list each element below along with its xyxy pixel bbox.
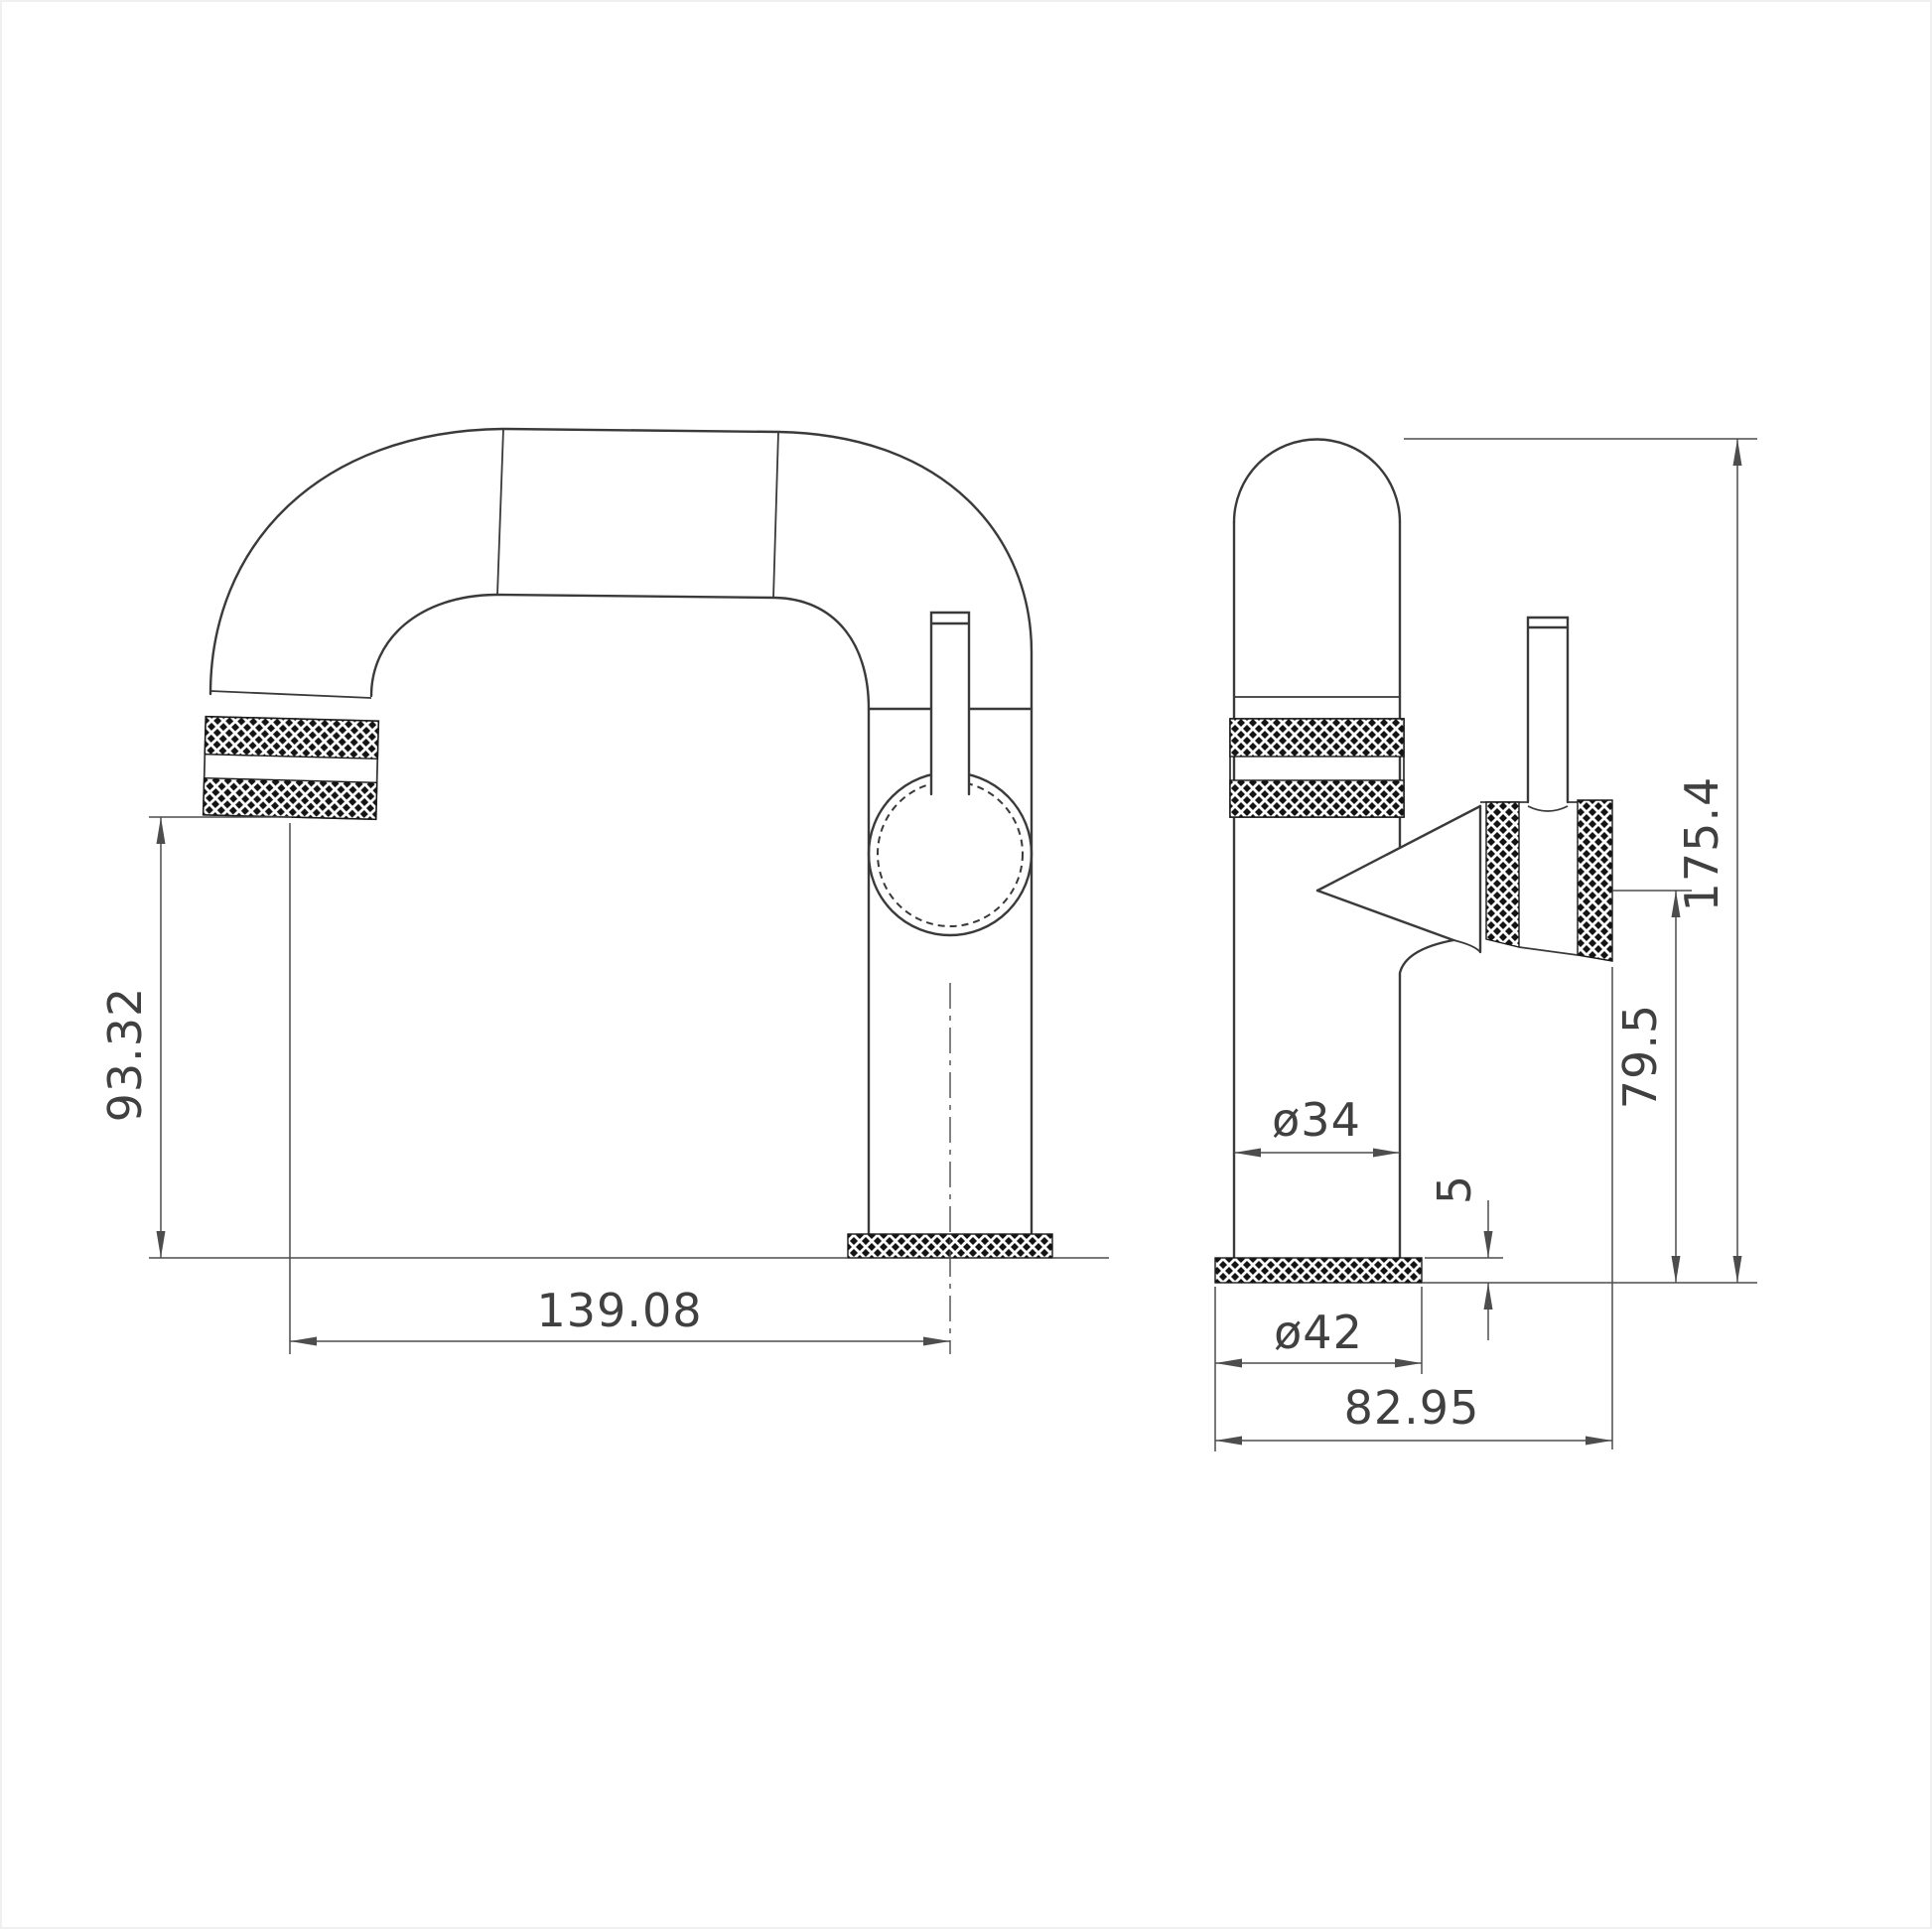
- spout-tip-ferrule: [204, 717, 379, 820]
- spout-tip-cap-line: [210, 691, 371, 698]
- dim-arrow-left: [1234, 1149, 1261, 1158]
- dim-label-base-height: 5: [1428, 1174, 1481, 1204]
- dim-arrow-right: [1586, 1437, 1612, 1446]
- dim-body-diameter: ø34: [1234, 1093, 1400, 1158]
- front-view: 93.32 139.08: [98, 429, 1109, 1354]
- collar-knurl-right: [1578, 800, 1612, 961]
- body-knurl-band-lower: [1230, 780, 1404, 817]
- spout-segment-line-right: [773, 432, 778, 598]
- handle-lever: [931, 613, 969, 796]
- spout-outer-profile: [210, 429, 1032, 1234]
- dim-arrow-right: [923, 1337, 950, 1346]
- dim-arrow-right: [1395, 1359, 1422, 1368]
- lever-base-fillet: [1528, 806, 1568, 811]
- spout-outline: [210, 429, 1032, 1234]
- dim-arrow-down: [1484, 1231, 1493, 1258]
- handle-knob: [869, 772, 1032, 935]
- collar-knurl-left: [1486, 802, 1519, 947]
- body-knurl-bands: [1230, 719, 1404, 817]
- spout-inner-profile: [371, 595, 869, 1234]
- technical-drawing-canvas: 93.32 139.08: [2, 2, 1932, 1931]
- knob-outer-circle: [869, 772, 1032, 935]
- dim-handle-height: 79.5: [1612, 891, 1692, 1283]
- body-knurl-band-upper: [1230, 719, 1404, 757]
- dim-arrow-right: [1373, 1149, 1400, 1158]
- side-view: 175.4 79.5 ø34 5: [1215, 439, 1757, 1451]
- collar-bottom-slant: [1519, 947, 1578, 955]
- spout-segment-line-left: [497, 429, 503, 595]
- dim-arrow-down: [1733, 1256, 1742, 1283]
- dim-arrow-left: [290, 1337, 317, 1346]
- dim-arrow-down: [1672, 1256, 1681, 1283]
- handle-lever-side: [1528, 618, 1568, 811]
- dim-arrow-left: [1215, 1359, 1242, 1368]
- dim-arrow-left: [1215, 1437, 1242, 1446]
- ferrule-knurl-band-lower: [204, 778, 377, 820]
- lever-mask: [1528, 618, 1568, 804]
- dim-label-spout-reach: 139.08: [537, 1284, 703, 1337]
- dim-label-spout-clearance: 93.32: [98, 987, 152, 1123]
- cone-collar-fillet: [1453, 940, 1480, 952]
- drawing-sheet: 93.32 139.08: [0, 0, 1932, 1929]
- dim-label-overall-depth: 82.95: [1344, 1381, 1480, 1435]
- dim-overall-depth: 82.95: [1215, 967, 1612, 1449]
- ferrule-knurl-band-upper: [205, 717, 378, 759]
- base-ring-knurl-side: [1215, 1258, 1422, 1283]
- dim-spout-clearance: 93.32: [98, 817, 1109, 1258]
- handle-collar: [1480, 800, 1612, 961]
- dim-label-handle-height: 79.5: [1613, 1004, 1667, 1109]
- dim-spout-reach: 139.08: [290, 823, 950, 1354]
- dim-arrow-up: [157, 817, 166, 844]
- dim-label-base-diameter: ø42: [1274, 1306, 1363, 1359]
- body-cap-arc: [1234, 440, 1400, 523]
- dim-arrow-up: [1733, 439, 1742, 466]
- dim-label-body-diameter: ø34: [1272, 1093, 1361, 1147]
- dim-arrow-down: [157, 1231, 166, 1258]
- dim-base-height: 5: [1425, 1174, 1503, 1340]
- dim-label-overall-height: 175.4: [1675, 776, 1728, 912]
- lever-mask: [931, 613, 969, 796]
- dim-arrow-up: [1484, 1283, 1493, 1310]
- knob-knurled-circle: [878, 781, 1023, 926]
